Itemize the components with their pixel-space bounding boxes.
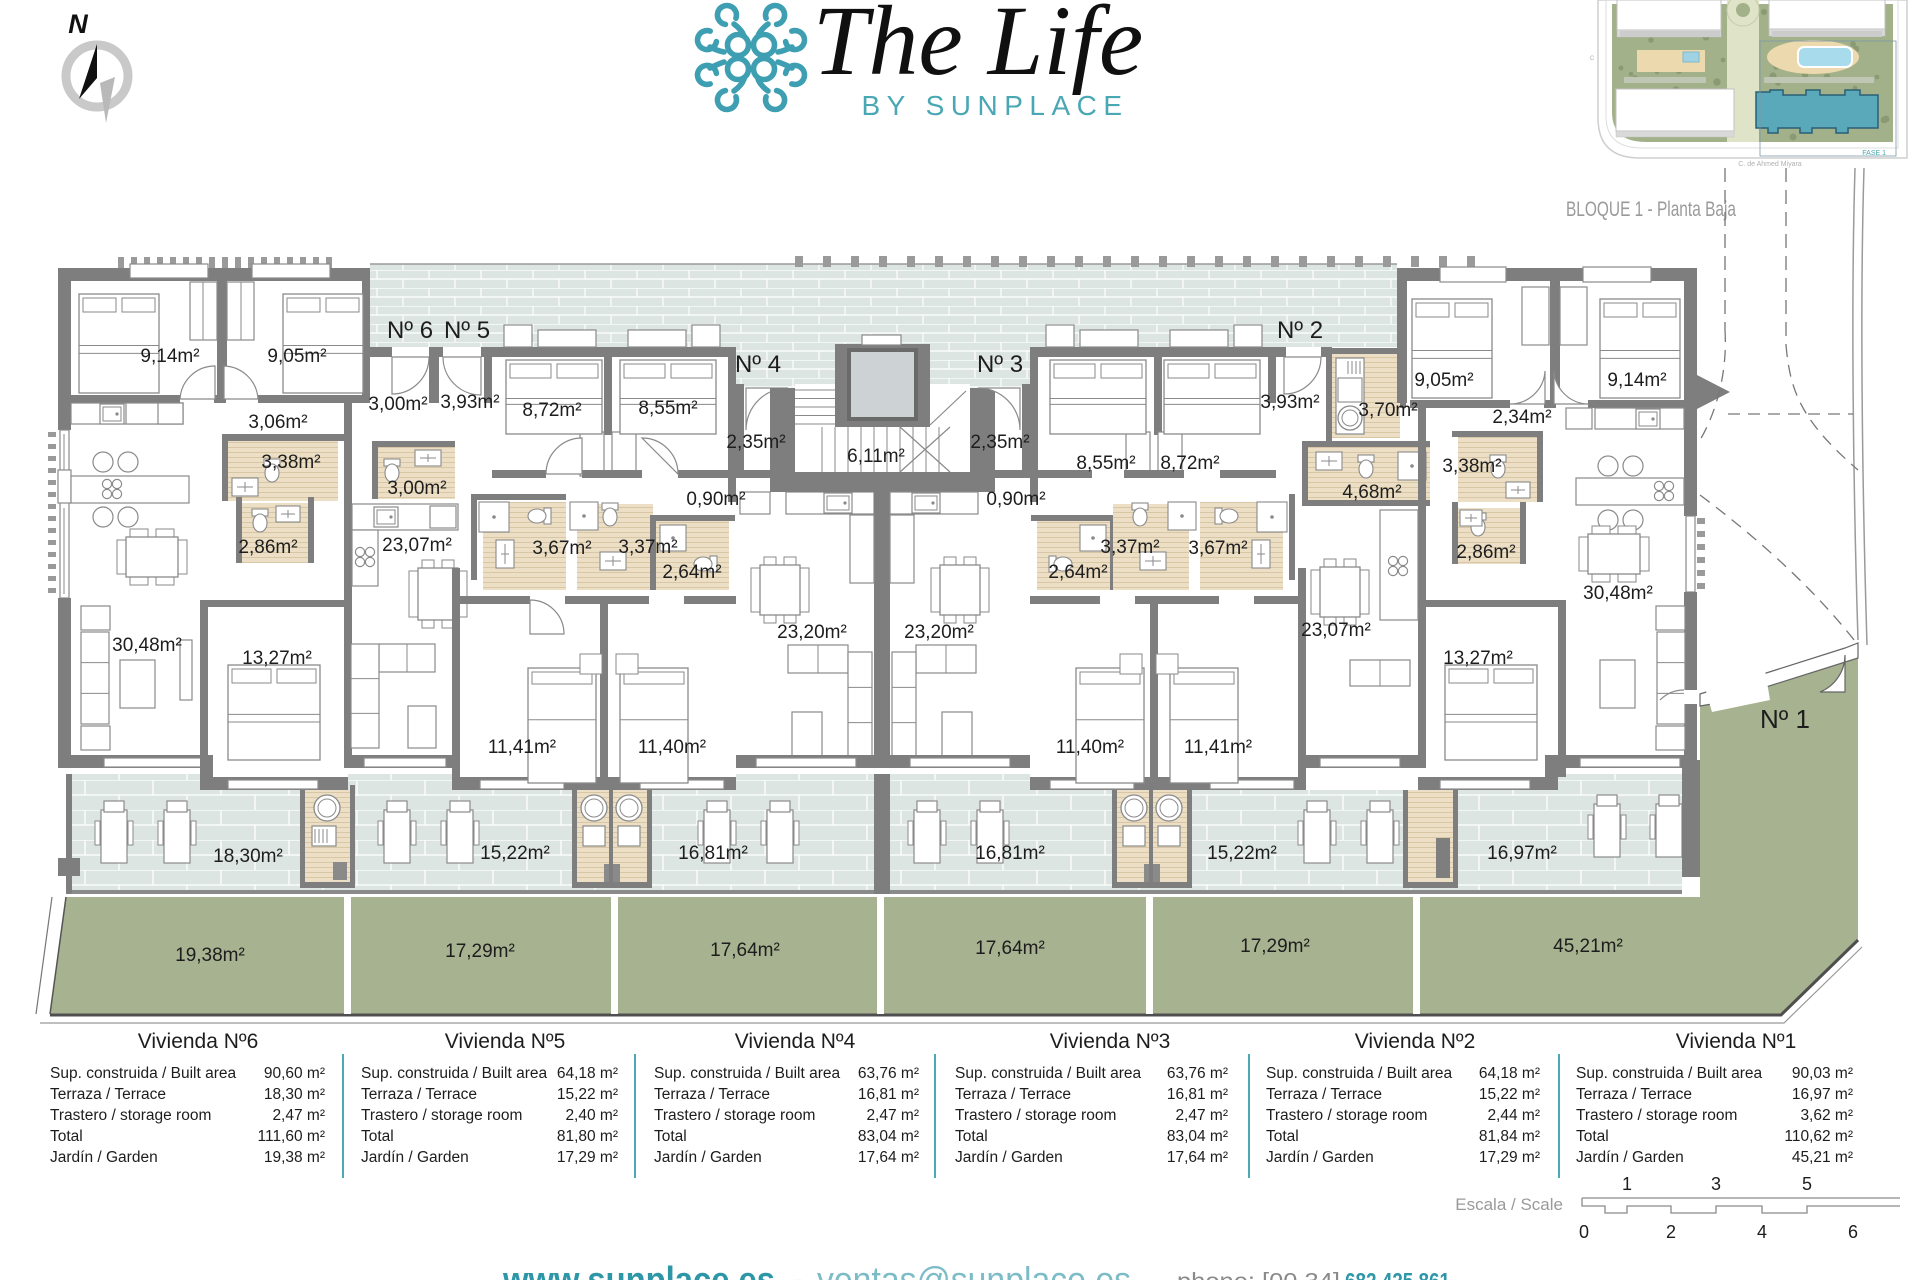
- svg-text:15,22m²: 15,22m²: [1207, 843, 1277, 864]
- svg-text:3,37m²: 3,37m²: [618, 537, 677, 558]
- svg-text:0,90m²: 0,90m²: [986, 489, 1045, 510]
- svg-text:19,38m²: 19,38m²: [175, 945, 245, 966]
- svg-text:45,21 m²: 45,21 m²: [1792, 1149, 1853, 1166]
- svg-text:3,93m²: 3,93m²: [440, 392, 499, 413]
- svg-text:17,64 m²: 17,64 m²: [1167, 1149, 1228, 1166]
- svg-text:6,11m²: 6,11m²: [847, 446, 905, 467]
- svg-text:64,18 m²: 64,18 m²: [557, 1065, 618, 1082]
- svg-text:Jardín / Garden: Jardín / Garden: [1576, 1149, 1684, 1166]
- svg-text:Nº 4: Nº 4: [735, 351, 781, 378]
- svg-text:13,27m²: 13,27m²: [1443, 648, 1513, 669]
- svg-text:Vivienda Nº4: Vivienda Nº4: [735, 1030, 856, 1053]
- svg-text:5: 5: [1802, 1174, 1812, 1194]
- svg-text:11,41m²: 11,41m²: [1184, 737, 1252, 758]
- svg-text:Vivienda Nº5: Vivienda Nº5: [445, 1030, 566, 1053]
- svg-text:2,35m²: 2,35m²: [970, 432, 1029, 453]
- svg-text:16,81m²: 16,81m²: [678, 843, 748, 864]
- svg-text:9,14m²: 9,14m²: [1607, 370, 1666, 391]
- svg-text:Vivienda Nº2: Vivienda Nº2: [1355, 1030, 1476, 1053]
- svg-text:18,30m²: 18,30m²: [213, 846, 283, 867]
- svg-text:63,76 m²: 63,76 m²: [1167, 1065, 1228, 1082]
- svg-text:17,64m²: 17,64m²: [975, 938, 1045, 959]
- svg-text:11,41m²: 11,41m²: [488, 737, 556, 758]
- svg-text:90,60 m²: 90,60 m²: [264, 1065, 325, 1082]
- svg-text:Total: Total: [654, 1128, 687, 1145]
- svg-text:17,29m²: 17,29m²: [1240, 936, 1310, 957]
- svg-text:Terraza / Terrace: Terraza / Terrace: [1576, 1086, 1692, 1103]
- svg-text:18,30 m²: 18,30 m²: [264, 1086, 325, 1103]
- svg-text:Total: Total: [1576, 1128, 1609, 1145]
- svg-text:23,20m²: 23,20m²: [777, 622, 847, 643]
- svg-text:Escala / Scale: Escala / Scale: [1455, 1195, 1563, 1214]
- svg-text:17,29m²: 17,29m²: [445, 941, 515, 962]
- svg-text:C. de Ahmed Miyara: C. de Ahmed Miyara: [1738, 161, 1802, 168]
- svg-text:17,29 m²: 17,29 m²: [1479, 1149, 1540, 1166]
- svg-text:11,40m²: 11,40m²: [1056, 737, 1124, 758]
- svg-text:2,47 m²: 2,47 m²: [272, 1107, 325, 1124]
- svg-text:8,55m²: 8,55m²: [638, 398, 697, 419]
- svg-text:13,27m²: 13,27m²: [242, 648, 312, 669]
- svg-text:Jardín / Garden: Jardín / Garden: [361, 1149, 469, 1166]
- svg-text:16,97m²: 16,97m²: [1487, 843, 1557, 864]
- svg-text:0: 0: [1579, 1222, 1589, 1242]
- svg-text:phone: [00 34]: phone: [00 34]: [1177, 1268, 1340, 1280]
- svg-text:Vivienda Nº1: Vivienda Nº1: [1676, 1030, 1797, 1053]
- svg-text:6: 6: [1848, 1222, 1858, 1242]
- svg-text:N: N: [68, 9, 88, 39]
- svg-text:23,20m²: 23,20m²: [904, 622, 974, 643]
- svg-text:3,62 m²: 3,62 m²: [1800, 1107, 1853, 1124]
- svg-text:Terraza / Terrace: Terraza / Terrace: [1266, 1086, 1382, 1103]
- svg-text:3,67m²: 3,67m²: [532, 538, 591, 559]
- svg-text:Terraza / Terrace: Terraza / Terrace: [955, 1086, 1071, 1103]
- svg-text:2,35m²: 2,35m²: [726, 432, 785, 453]
- svg-text:110,62 m²: 110,62 m²: [1784, 1128, 1853, 1145]
- svg-text:3,93m²: 3,93m²: [1260, 392, 1319, 413]
- svg-text:3,67m²: 3,67m²: [1188, 538, 1247, 559]
- svg-text:Total: Total: [1266, 1128, 1299, 1145]
- svg-text:17,64 m²: 17,64 m²: [858, 1149, 919, 1166]
- svg-text:15,22 m²: 15,22 m²: [557, 1086, 618, 1103]
- svg-text:Trastero / storage room: Trastero / storage room: [50, 1107, 211, 1124]
- svg-text:Nº 5: Nº 5: [444, 317, 490, 344]
- svg-text:0,90m²: 0,90m²: [686, 489, 745, 510]
- svg-text:45,21m²: 45,21m²: [1553, 936, 1623, 957]
- svg-text:3,06m²: 3,06m²: [248, 412, 307, 433]
- svg-text:Terraza / Terrace: Terraza / Terrace: [361, 1086, 477, 1103]
- svg-text:3: 3: [1711, 1174, 1721, 1194]
- svg-text:2,47 m²: 2,47 m²: [1175, 1107, 1228, 1124]
- svg-text:2,47 m²: 2,47 m²: [866, 1107, 919, 1124]
- svg-text:Trastero / storage room: Trastero / storage room: [361, 1107, 522, 1124]
- svg-text:Jardín / Garden: Jardín / Garden: [955, 1149, 1063, 1166]
- svg-text:Jardín / Garden: Jardín / Garden: [654, 1149, 762, 1166]
- svg-text:3,00m²: 3,00m²: [387, 478, 446, 499]
- svg-text:3,38m²: 3,38m²: [1442, 456, 1501, 477]
- svg-text:8,55m²: 8,55m²: [1076, 453, 1135, 474]
- svg-text:4: 4: [1757, 1222, 1767, 1242]
- svg-text:Terraza / Terrace: Terraza / Terrace: [50, 1086, 166, 1103]
- svg-text:2,64m²: 2,64m²: [1048, 562, 1107, 583]
- svg-text:9,05m²: 9,05m²: [1414, 370, 1473, 391]
- svg-text:2,44 m²: 2,44 m²: [1487, 1107, 1540, 1124]
- svg-text:8,72m²: 8,72m²: [1160, 453, 1219, 474]
- svg-text:2,34m²: 2,34m²: [1492, 407, 1551, 428]
- svg-text:ventas@sunplace.es: ventas@sunplace.es: [817, 1259, 1131, 1280]
- svg-text:Sup. construida / Built area: Sup. construida / Built area: [1576, 1065, 1762, 1082]
- svg-text:2: 2: [1666, 1222, 1676, 1242]
- svg-text:90,03 m²: 90,03 m²: [1792, 1065, 1853, 1082]
- svg-text:11,40m²: 11,40m²: [638, 737, 706, 758]
- svg-text:Trastero / storage room: Trastero / storage room: [1576, 1107, 1737, 1124]
- svg-text:15,22 m²: 15,22 m²: [1479, 1086, 1540, 1103]
- svg-text:-: -: [793, 1261, 804, 1280]
- svg-text:17,64m²: 17,64m²: [710, 940, 780, 961]
- svg-text:Vivienda Nº6: Vivienda Nº6: [138, 1030, 259, 1053]
- svg-text:81,80 m²: 81,80 m²: [557, 1128, 618, 1145]
- svg-text:83,04 m²: 83,04 m²: [858, 1128, 919, 1145]
- svg-text:Sup. construida / Built area: Sup. construida / Built area: [654, 1065, 840, 1082]
- svg-text:2,86m²: 2,86m²: [1456, 542, 1515, 563]
- svg-text:83,04 m²: 83,04 m²: [1167, 1128, 1228, 1145]
- svg-text:16,97 m²: 16,97 m²: [1792, 1086, 1853, 1103]
- svg-text:16,81 m²: 16,81 m²: [1167, 1086, 1228, 1103]
- svg-text:Nº 1: Nº 1: [1760, 704, 1810, 734]
- svg-text:Vivienda Nº3: Vivienda Nº3: [1050, 1030, 1171, 1053]
- svg-text:BLOQUE 1 - Planta Baja: BLOQUE 1 - Planta Baja: [1566, 198, 1736, 221]
- svg-text:Sup. construida / Built area: Sup. construida / Built area: [50, 1065, 236, 1082]
- svg-text:3,38m²: 3,38m²: [261, 452, 320, 473]
- svg-text:4,68m²: 4,68m²: [1342, 482, 1401, 503]
- svg-text:BY SUNPLACE: BY SUNPLACE: [861, 90, 1128, 121]
- svg-text:Total: Total: [361, 1128, 394, 1145]
- svg-text:Jardín / Garden: Jardín / Garden: [50, 1149, 158, 1166]
- svg-text:Nº 2: Nº 2: [1277, 317, 1323, 344]
- svg-text:2,40 m²: 2,40 m²: [565, 1107, 618, 1124]
- svg-text:Trastero / storage room: Trastero / storage room: [1266, 1107, 1427, 1124]
- svg-text:16,81 m²: 16,81 m²: [858, 1086, 919, 1103]
- svg-text:Trastero / storage room: Trastero / storage room: [654, 1107, 815, 1124]
- svg-text:Total: Total: [50, 1128, 83, 1145]
- svg-text:15,22m²: 15,22m²: [480, 843, 550, 864]
- svg-text:Nº 6: Nº 6: [387, 317, 433, 344]
- svg-text:FASE 1: FASE 1: [1862, 150, 1886, 157]
- svg-text:19,38 m²: 19,38 m²: [264, 1149, 325, 1166]
- svg-text:2,86m²: 2,86m²: [238, 537, 297, 558]
- svg-text:3,37m²: 3,37m²: [1100, 537, 1159, 558]
- svg-text:111,60 m²: 111,60 m²: [258, 1128, 326, 1145]
- svg-text:23,07m²: 23,07m²: [1301, 620, 1371, 641]
- svg-text:3,70m²: 3,70m²: [1358, 400, 1417, 421]
- svg-text:64,18 m²: 64,18 m²: [1479, 1065, 1540, 1082]
- svg-text:Sup. construida / Built area: Sup. construida / Built area: [361, 1065, 547, 1082]
- svg-text:9,14m²: 9,14m²: [140, 346, 199, 367]
- svg-text:3,00m²: 3,00m²: [368, 394, 427, 415]
- svg-text:-: -: [1148, 1265, 1157, 1280]
- svg-text:30,48m²: 30,48m²: [1583, 583, 1653, 604]
- svg-text:Sup. construida / Built area: Sup. construida / Built area: [1266, 1065, 1452, 1082]
- svg-text:81,84 m²: 81,84 m²: [1479, 1128, 1540, 1145]
- svg-text:2,64m²: 2,64m²: [662, 562, 721, 583]
- svg-text:www.sunplace.es: www.sunplace.es: [502, 1259, 775, 1280]
- svg-text:The Life: The Life: [813, 0, 1144, 96]
- svg-text:9,05m²: 9,05m²: [267, 346, 326, 367]
- svg-text:682 425 861: 682 425 861: [1345, 1268, 1450, 1280]
- svg-text:Terraza / Terrace: Terraza / Terrace: [654, 1086, 770, 1103]
- svg-text:8,72m²: 8,72m²: [522, 400, 581, 421]
- svg-text:Trastero / storage room: Trastero / storage room: [955, 1107, 1116, 1124]
- svg-text:Jardín / Garden: Jardín / Garden: [1266, 1149, 1374, 1166]
- svg-text:30,48m²: 30,48m²: [112, 635, 182, 656]
- svg-text:Sup. construida / Built area: Sup. construida / Built area: [955, 1065, 1141, 1082]
- svg-text:63,76 m²: 63,76 m²: [858, 1065, 919, 1082]
- svg-text:Total: Total: [955, 1128, 988, 1145]
- svg-text:C: C: [1590, 56, 1595, 62]
- svg-text:1: 1: [1622, 1174, 1632, 1194]
- svg-text:17,29 m²: 17,29 m²: [557, 1149, 618, 1166]
- svg-text:23,07m²: 23,07m²: [382, 535, 452, 556]
- svg-text:Nº 3: Nº 3: [977, 351, 1023, 378]
- svg-text:16,81m²: 16,81m²: [975, 843, 1045, 864]
